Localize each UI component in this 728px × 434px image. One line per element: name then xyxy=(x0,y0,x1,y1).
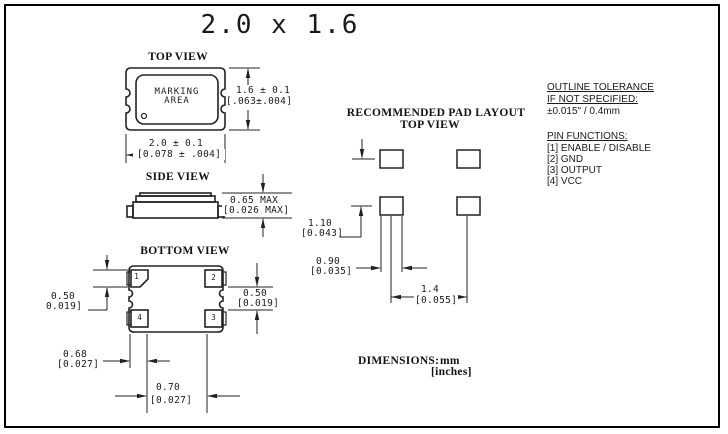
pad-layout-col-pitch-in: [0.055] xyxy=(414,295,458,306)
bottom-view-pad-span-mm: 0.70 xyxy=(156,382,180,393)
pad-1-number: 1 xyxy=(131,272,142,281)
pin-functions-title: PIN FUNCTIONS: xyxy=(547,131,628,142)
outline-tolerance-condition: IF NOT SPECIFIED: xyxy=(547,94,638,105)
pad-3-number: 3 xyxy=(208,313,219,322)
top-view-width-in: [0.078 ± .004] xyxy=(133,149,225,160)
pad-layout-title: RECOMMENDED PAD LAYOUT xyxy=(346,107,526,119)
bottom-view-pad-height-in: 0.019] xyxy=(46,301,82,312)
units-inches-label: [inches] xyxy=(431,366,472,378)
top-view-label: TOP VIEW xyxy=(126,51,230,63)
pad-2-number: 2 xyxy=(208,273,219,282)
outline-tolerance-value: ±0.015" / 0.4mm xyxy=(547,106,620,117)
side-view-outline xyxy=(127,193,224,218)
bottom-view-label: BOTTOM VIEW xyxy=(126,245,244,257)
outline-tolerance-title: OUTLINE TOLERANCE xyxy=(547,82,654,93)
bottom-view-pad-span-in: [0.027] xyxy=(150,395,192,406)
pin-function-3: [3] OUTPUT xyxy=(547,165,602,176)
side-view-height-in: [0.026 MAX] xyxy=(222,205,290,216)
pad-layout-pads xyxy=(380,150,480,215)
pad-4-number: 4 xyxy=(134,313,145,322)
datasheet-drawing-page: 2.0 x 1.6 TOP VIEW MARKING AREA 1.6 ± 0.… xyxy=(0,0,728,434)
pad-layout-pad-width-in: [0.035] xyxy=(310,266,352,277)
pad-layout-subtitle: TOP VIEW xyxy=(346,119,514,131)
bottom-view-corner-offset-in: [0.027] xyxy=(57,359,99,370)
top-view-height-in: [.063±.004] xyxy=(226,96,292,107)
drawing-title: 2.0 x 1.6 xyxy=(160,10,400,40)
top-view-height-mm: 1.6 ± 0.1 xyxy=(236,85,290,96)
pin-function-1: [1] ENABLE / DISABLE xyxy=(547,143,651,154)
dimensions-label: DIMENSIONS: xyxy=(358,355,439,367)
pin-function-4: [4] VCC xyxy=(547,176,582,187)
bottom-view-pad-gap-in: [0.019] xyxy=(237,298,279,309)
pad-layout-col-pitch-mm: 1.4 xyxy=(421,284,439,295)
pad-layout-row-pitch-in: [0.043] xyxy=(301,228,343,239)
side-view-label: SIDE VIEW xyxy=(126,171,230,183)
marking-area-text: MARKING AREA xyxy=(136,88,218,105)
pin-function-2: [2] GND xyxy=(547,154,583,165)
top-view-width-mm: 2.0 ± 0.1 xyxy=(126,138,226,149)
drawing-linework xyxy=(0,0,728,434)
